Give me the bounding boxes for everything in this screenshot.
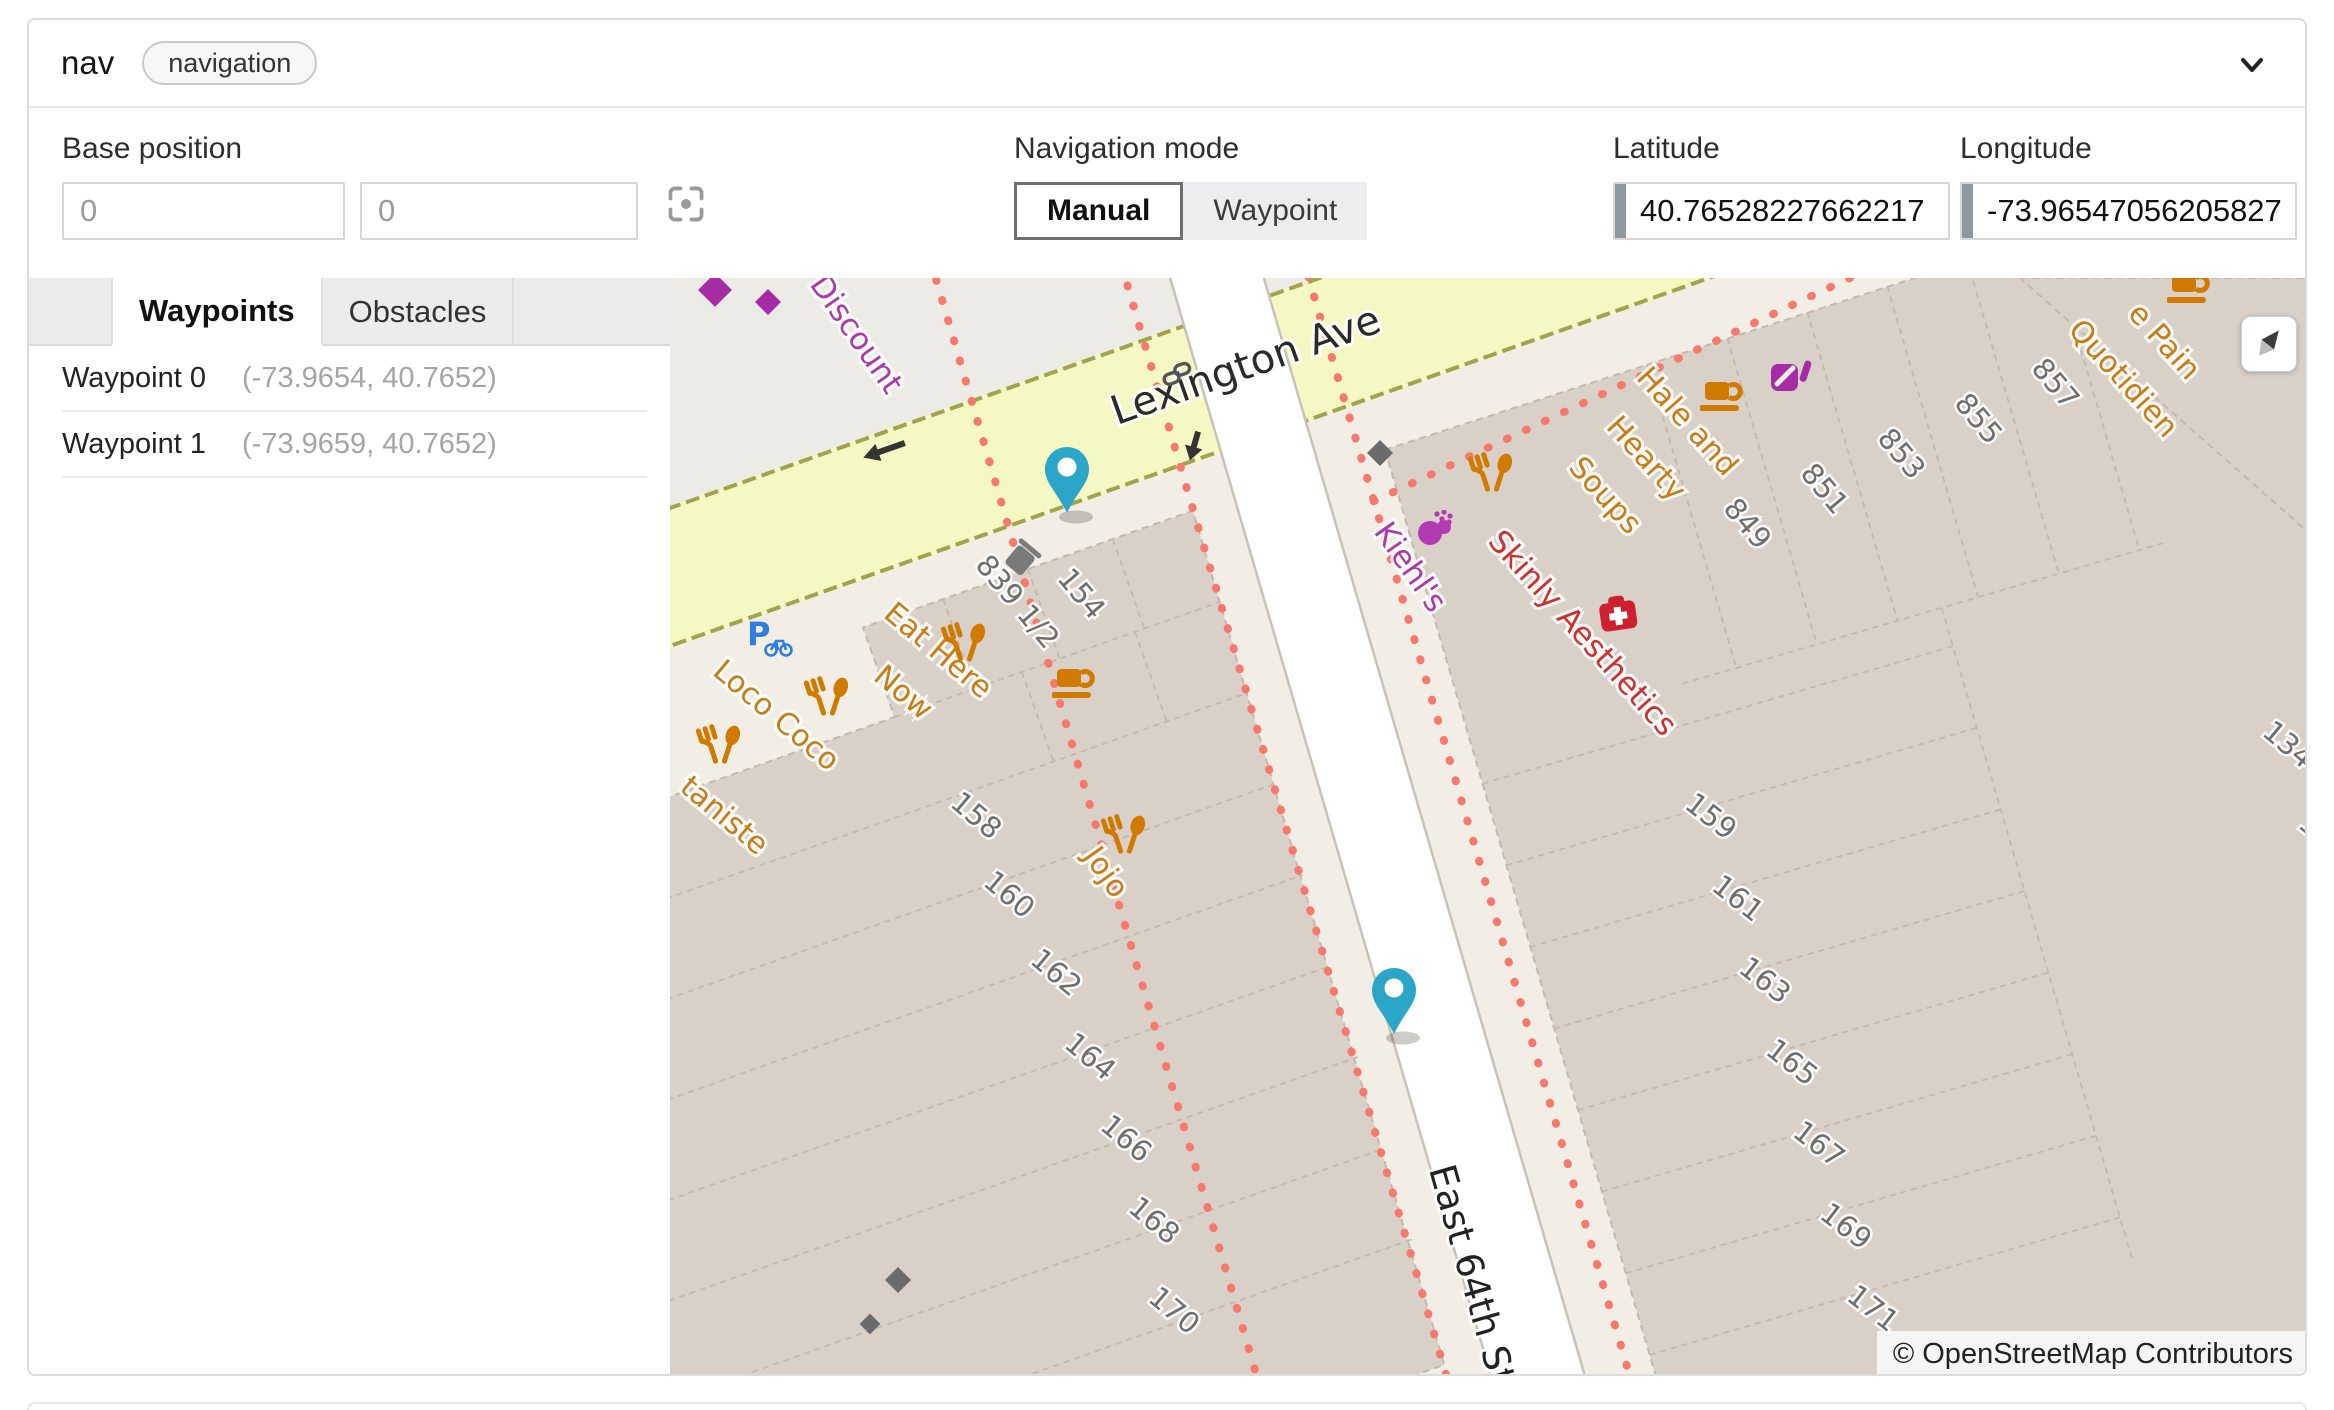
longitude-label: Longitude xyxy=(1960,132,2092,166)
latitude-label: Latitude xyxy=(1613,132,1720,166)
map-attribution: © OpenStreetMap Contributors xyxy=(1877,1331,2307,1376)
base-position-label: Base position xyxy=(62,132,242,166)
waypoint-row[interactable]: Waypoint 1(-73.9659, 40.7652) xyxy=(62,412,647,478)
compass-needle-icon xyxy=(2249,323,2289,366)
mode-manual-button[interactable]: Manual xyxy=(1014,182,1183,240)
navigation-mode-toggle: ManualWaypoint xyxy=(1014,182,1367,240)
latitude-input[interactable] xyxy=(1626,184,1948,238)
latitude-field xyxy=(1613,182,1950,240)
compass-button[interactable] xyxy=(2241,316,2297,372)
waypoints-panel: WaypointsObstacles Waypoint 0(-73.9654, … xyxy=(29,278,670,1374)
waypoint-list: Waypoint 0(-73.9654, 40.7652)Waypoint 1(… xyxy=(29,346,670,478)
mode-waypoint-button[interactable]: Waypoint xyxy=(1183,182,1367,240)
base-position-y-input[interactable] xyxy=(360,182,638,240)
latitude-drag-handle[interactable] xyxy=(1615,184,1626,238)
chevron-down-icon xyxy=(2233,72,2271,87)
longitude-input[interactable] xyxy=(1973,184,2295,238)
waypoint-name: Waypoint 1 xyxy=(62,428,242,461)
focus-target-icon xyxy=(666,212,706,227)
set-base-position-button[interactable] xyxy=(666,184,706,224)
waypoint-coords: (-73.9654, 40.7652) xyxy=(242,362,497,395)
waypoint-coords: (-73.9659, 40.7652) xyxy=(242,428,497,461)
tab-waypoints[interactable]: Waypoints xyxy=(111,278,323,346)
nav-card: nav navigation Base position Navigation … xyxy=(27,18,2307,1376)
map[interactable]: P xyxy=(670,278,2307,1376)
collapse-card-button[interactable] xyxy=(2233,46,2271,84)
navigation-type-badge: navigation xyxy=(142,41,317,85)
card-title: nav xyxy=(61,44,114,82)
tab-bar: WaypointsObstacles xyxy=(29,278,670,346)
base-position-x-input[interactable] xyxy=(62,182,345,240)
longitude-field xyxy=(1960,182,2297,240)
card-header: nav navigation xyxy=(29,20,2305,108)
waypoint-row[interactable]: Waypoint 0(-73.9654, 40.7652) xyxy=(62,346,647,412)
tab-obstacles[interactable]: Obstacles xyxy=(323,278,515,346)
waypoint-name: Waypoint 0 xyxy=(62,362,242,395)
navigation-mode-label: Navigation mode xyxy=(1014,132,1239,166)
next-card-top-edge xyxy=(27,1402,2307,1410)
longitude-drag-handle[interactable] xyxy=(1962,184,1973,238)
